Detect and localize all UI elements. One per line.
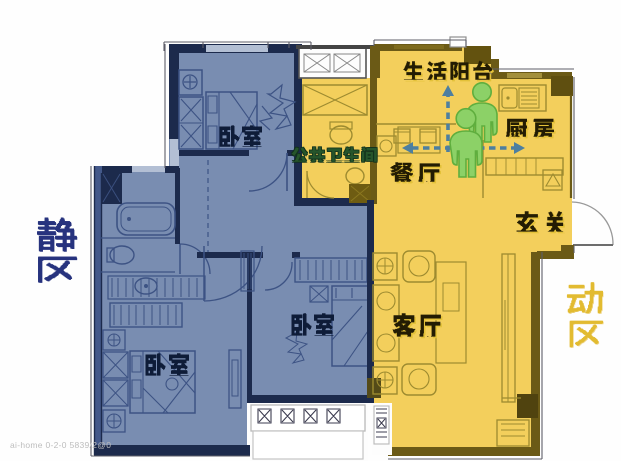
svg-text:ai-home 0-2-0 5839/2@0: ai-home 0-2-0 5839/2@0 [10,440,111,450]
